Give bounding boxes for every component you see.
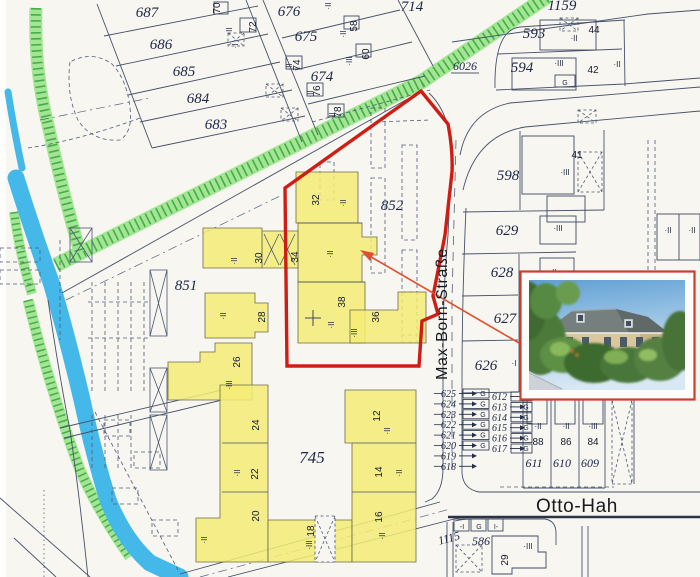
map-label-I-: I- (494, 524, 499, 531)
map-label-88: 88 (532, 437, 544, 448)
map-label-II: ·II (339, 30, 348, 37)
map-label-609: 609 (581, 456, 599, 470)
map-label-II: ·II (339, 199, 348, 206)
map-label-II: ·II (285, 63, 294, 70)
garage-parcel-613: 613 (492, 402, 507, 413)
map-label-II: ·II (233, 469, 242, 476)
map-label-II: ·II (395, 469, 404, 476)
map-label-686: 686 (150, 37, 173, 53)
garage-parcel-615: 615 (492, 423, 507, 434)
map-label-598: 598 (497, 168, 520, 184)
map-label-III: ·III (350, 328, 359, 337)
map-label-20: 20 (251, 510, 262, 522)
map-label-30: 30 (254, 252, 265, 264)
map-label-683: 683 (205, 117, 228, 133)
map-label-851: 851 (175, 278, 198, 294)
garage-g-mark: G (523, 436, 528, 443)
garage-g-mark: G (480, 412, 485, 419)
map-label-II: ·II (200, 536, 209, 543)
map-label-685: 685 (173, 64, 196, 80)
map-label-594: 594 (511, 60, 534, 76)
map-label-III: ·III (305, 540, 314, 549)
garage-parcel-624: 624 (441, 399, 456, 410)
cadastral-map: 6876866856846836766756747141159593594602… (0, 0, 700, 577)
map-label-626: 626 (475, 358, 498, 374)
map-label-675: 675 (295, 29, 318, 45)
map-label-II: ·II (570, 34, 577, 43)
garage-parcel-616: 616 (492, 434, 507, 445)
map-label-I: ·I (512, 359, 517, 368)
map-label-745: 745 (299, 448, 325, 467)
map-label-36: 36 (371, 311, 382, 323)
map-label-14: 14 (374, 466, 385, 478)
garage-parcel-620: 620 (441, 441, 456, 452)
map-label-60: 60 (361, 48, 372, 60)
map-label-34: 34 (290, 251, 301, 263)
map-label-32: 32 (311, 194, 322, 206)
map-label--I: -I (460, 524, 464, 531)
map-label-II: ·II (306, 90, 315, 97)
map-label-24: 24 (251, 419, 262, 431)
map-label-41: 41 (571, 150, 583, 161)
garage-g-mark: G (480, 443, 485, 450)
map-label-III: ·III (554, 59, 563, 68)
map-label-628: 628 (491, 265, 514, 281)
garage-parcel-619: 619 (441, 451, 456, 462)
garage-parcel-614: 614 (492, 413, 507, 424)
garage-g-mark: G (480, 433, 485, 440)
garage-parcel-623: 623 (441, 410, 456, 421)
map-label-28: 28 (257, 311, 268, 323)
garage-g-mark: G (523, 415, 528, 422)
map-label-58: 58 (349, 20, 360, 32)
map-label-22: 22 (250, 468, 261, 480)
map-label-I: ·I (231, 44, 240, 49)
map-label-III: ·III (225, 380, 234, 389)
map-label-86: 86 (560, 437, 572, 448)
map-label-II: ·II (327, 321, 336, 328)
map-label-III: ·III (523, 542, 532, 551)
map-label-II: ·II (664, 226, 671, 235)
map-label-684: 684 (187, 91, 210, 107)
inset-photo-image (506, 280, 698, 390)
map-label-674: 674 (311, 69, 334, 85)
map-label-44: 44 (588, 25, 600, 36)
street-label-otto-hahn: Otto-Hah (536, 496, 618, 517)
garage-parcel-625: 625 (441, 389, 456, 400)
map-label-593: 593 (523, 26, 546, 42)
map-label-G: G (476, 524, 481, 531)
garage-g-mark: G (523, 446, 528, 453)
map-label-II: ·II (326, 250, 335, 257)
map-label-42: 42 (587, 65, 599, 76)
cadastral-map-page: 6876866856846836766756747141159593594602… (0, 0, 700, 577)
map-label-III: ·III (553, 224, 562, 233)
garage-g-mark: G (480, 422, 485, 429)
map-label-18: 18 (306, 525, 317, 537)
map-label-II: ·II (562, 422, 569, 431)
map-label-II: ·II (383, 427, 392, 434)
map-label-II: ·II (230, 257, 239, 264)
map-label-72: 72 (248, 21, 259, 33)
map-label-611: 611 (525, 456, 542, 470)
scan-edge (0, 0, 6, 577)
map-label-687: 687 (136, 5, 160, 21)
map-label-714: 714 (401, 0, 424, 15)
garage-parcel-622: 622 (441, 420, 456, 431)
inset-photo (506, 272, 698, 400)
garage-parcel-621: 621 (441, 431, 456, 442)
map-label-III: ·III (588, 422, 597, 431)
map-label-6026: 6026 (453, 59, 477, 73)
garage-parcel-618: 618 (441, 462, 456, 473)
street-label-max-born-strasse: Max-Born-Straße (434, 248, 451, 380)
map-label-84: 84 (587, 437, 599, 448)
map-label-III: ·III (560, 168, 569, 177)
map-label-II: ·II (613, 60, 620, 69)
map-label-II: ·II (225, 27, 234, 34)
garage-parcel-617: 617 (492, 444, 508, 455)
garage-g-mark: G (480, 391, 485, 398)
map-label-627: 627 (494, 311, 518, 327)
map-label-16: 16 (374, 511, 385, 523)
map-label-II: ·II (688, 226, 695, 235)
map-label-629: 629 (496, 223, 519, 239)
garage-g-mark: G (480, 401, 485, 408)
map-label-38: 38 (337, 296, 348, 308)
map-label-70: 70 (212, 2, 223, 14)
map-label-II: ·II (324, 2, 333, 9)
map-label-II: ·II (328, 112, 337, 119)
map-label-12: 12 (372, 410, 383, 422)
map-label-1159: 1159 (548, 0, 577, 14)
map-label-676: 676 (278, 4, 301, 20)
map-label-III: ·III (345, 56, 354, 65)
map-label-586: 586 (472, 534, 490, 548)
garage-g-mark: G (523, 425, 528, 432)
map-label-852: 852 (381, 198, 404, 214)
map-label-610: 610 (553, 456, 571, 470)
garage-parcel-612: 612 (492, 392, 507, 403)
map-label-29: 29 (500, 554, 511, 566)
garage-g-mark: G (523, 404, 528, 411)
map-label-II: ·II (219, 312, 228, 319)
map-label-26: 26 (232, 356, 243, 368)
map-label-II: ·II (378, 532, 387, 539)
map-label-II: ·II (534, 422, 541, 431)
map-label-G: G (562, 80, 567, 87)
